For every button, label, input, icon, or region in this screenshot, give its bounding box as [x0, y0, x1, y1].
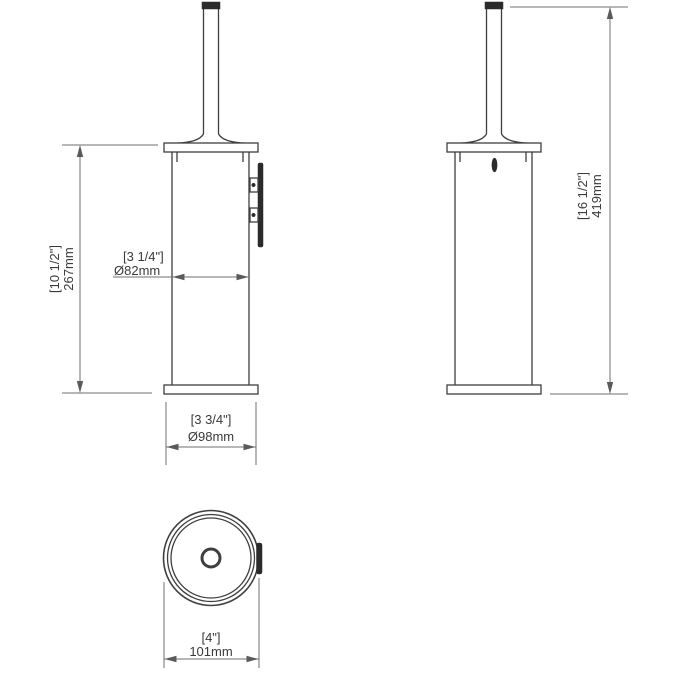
wall-bracket-screw-bottom: [252, 213, 256, 217]
arrow-left-icon: [173, 274, 185, 280]
brush-handle-cap: [202, 2, 220, 9]
arrow-right-icon: [247, 656, 259, 662]
wall-bracket-screw-top: [252, 183, 256, 187]
dim-base-diameter-inches: [3 3/4"]: [191, 412, 232, 427]
arrow-left-icon: [167, 444, 179, 450]
arrow-down-icon: [607, 382, 613, 394]
view-side-wall-mounted: [164, 2, 263, 394]
arrow-right-icon: [244, 444, 256, 450]
top-view-middle-rim: [168, 515, 255, 602]
dim-canister-height-metric: 267mm: [61, 247, 76, 290]
dim-canister-height-inches: [10 1/2"]: [47, 245, 62, 293]
view-side-freestanding: [447, 2, 541, 394]
lid-dome: [459, 134, 529, 143]
arrow-up-icon: [77, 145, 83, 157]
brush-handle-cap: [485, 2, 503, 9]
top-view-inner-rim: [171, 518, 251, 598]
dim-body-diameter-metric: Ø82mm: [114, 263, 160, 278]
drawing-svg: [10 1/2"] 267mm [3 1/4"] Ø82mm [3 3/4"] …: [0, 0, 680, 680]
mount-keyhole-slot: [492, 158, 497, 172]
arrow-down-icon: [77, 381, 83, 393]
dim-body-diameter: [3 1/4"] Ø82mm: [113, 249, 249, 280]
dim-overall-width-inches: [4"]: [201, 630, 220, 645]
dim-overall-height-inches: [16 1/2"]: [575, 172, 590, 220]
lid-dome: [176, 134, 246, 143]
dim-base-diameter-metric: Ø98mm: [188, 429, 234, 444]
top-view-bracket-tab: [257, 543, 263, 574]
technical-drawing: [10 1/2"] 267mm [3 1/4"] Ø82mm [3 3/4"] …: [0, 0, 680, 680]
brush-handle-rod: [204, 6, 219, 135]
arrow-up-icon: [607, 7, 613, 19]
top-view-outer-rim: [164, 511, 259, 606]
dim-overall-width-metric: 101mm: [189, 644, 232, 659]
wall-bracket: [250, 163, 263, 247]
base-plate: [447, 385, 541, 394]
base-plate: [164, 385, 258, 394]
dim-body-diameter-inches: [3 1/4"]: [123, 249, 164, 264]
dim-overall-height-metric: 419mm: [589, 174, 604, 217]
wall-bracket-bar: [258, 163, 263, 247]
arrow-left-icon: [165, 656, 177, 662]
view-top: [164, 511, 263, 606]
brush-handle-rod: [487, 6, 502, 135]
lid-plate: [447, 143, 541, 152]
top-view-handle-hole: [202, 549, 220, 567]
arrow-right-icon: [237, 274, 249, 280]
lid-plate: [164, 143, 258, 152]
dim-overall-height: [16 1/2"] 419mm: [510, 7, 628, 394]
dim-base-diameter: [3 3/4"] Ø98mm: [166, 402, 256, 465]
